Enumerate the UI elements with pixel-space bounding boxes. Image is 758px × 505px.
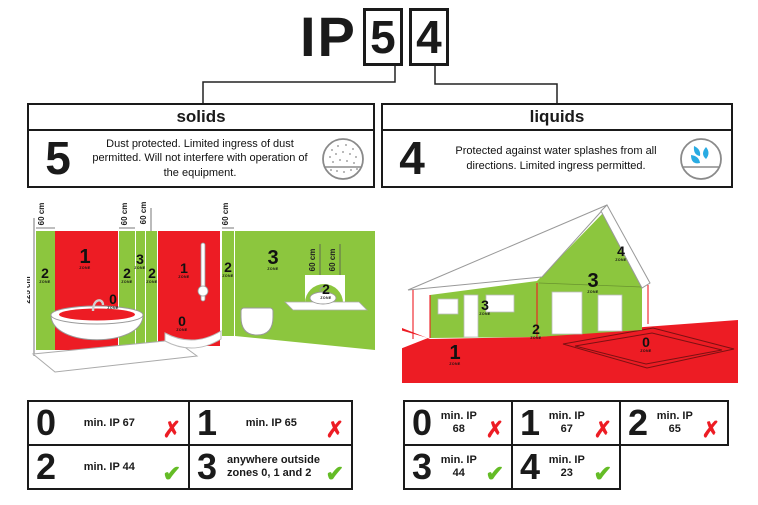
zone-word: ZONE (39, 280, 51, 284)
patio-door (552, 292, 582, 334)
zone-word: ZONE (267, 267, 279, 271)
dist-label-4: 60 cm (221, 203, 230, 226)
zone-word: ZONE (176, 328, 188, 332)
ip-prefix: IP (300, 8, 357, 66)
fail-x-icon: ✗ (326, 419, 344, 441)
dist-label-5: 60 cm (308, 249, 317, 272)
dust-circle-icon (319, 136, 367, 182)
rating-cell: 2 min. IP 65 ✗ (619, 400, 729, 446)
zone-word: ZONE (320, 296, 332, 300)
zone-3-label: 3 (136, 251, 144, 267)
zone-word: ZONE (530, 336, 542, 340)
solids-description: Dust protected. Limited ingress of dust … (81, 137, 319, 180)
zone-number: 4 (520, 445, 540, 489)
pass-check-icon: ✔ (594, 463, 612, 485)
water-splash-icon (677, 136, 725, 182)
min-ip-text: min. IP 67 (56, 417, 163, 430)
liquids-description: Protected against water splashes from al… (435, 144, 677, 173)
zone-word: ZONE (178, 275, 190, 279)
zone-2-label: 2 (532, 321, 540, 337)
zone-word: ZONE (134, 266, 146, 270)
table-row: 2 min. IP 44 ✔ 3 anywhere outside zones … (27, 446, 353, 490)
fail-x-icon: ✗ (594, 419, 612, 441)
fail-x-icon: ✗ (486, 419, 504, 441)
zone-0-label: 0 (109, 291, 117, 307)
table-row: 3 min. IP 44 ✔ 4 min. IP 23 ✔ (403, 446, 729, 490)
zone-3-label: 3 (481, 297, 489, 313)
dist-label-1: 60 cm (37, 203, 46, 226)
rating-cell: 3 min. IP 44 ✔ (403, 444, 513, 490)
solids-digit-box: 5 (363, 8, 403, 66)
rating-cell: 1 min. IP 67 ✗ (511, 400, 621, 446)
liquids-body: 4 Protected against water splashes from … (383, 131, 731, 186)
zone-word: ZONE (146, 280, 158, 284)
min-ip-text: min. IP 65 (648, 410, 702, 435)
front-window-1 (438, 299, 458, 314)
rating-cell: 3 anywhere outside zones 0, 1 and 2 ✔ (188, 444, 353, 490)
zone-word: ZONE (121, 280, 133, 284)
zone-number: 2 (628, 401, 648, 445)
zone-2-label: 2 (322, 281, 330, 297)
min-ip-text: anywhere outside zones 0, 1 and 2 (217, 454, 326, 479)
table-row: 0 min. IP 67 ✗ 1 min. IP 65 ✗ (27, 400, 353, 446)
liquids-rating-digit: 4 (389, 131, 435, 186)
rating-cell: 2 min. IP 44 ✔ (27, 444, 190, 490)
zone-number: 3 (412, 445, 432, 489)
zone-word: ZONE (479, 312, 491, 316)
liquids-header: liquids (383, 105, 731, 131)
title: IP 5 4 (300, 8, 449, 66)
solids-body: 5 Dust protected. Limited ingress of dus… (29, 131, 373, 186)
solids-panel: solids 5 Dust protected. Limited ingress… (27, 103, 375, 188)
zone-number: 2 (36, 445, 56, 489)
toilet (241, 308, 273, 335)
liquids-digit-box: 4 (409, 8, 449, 66)
dist-label-6: 60 cm (328, 249, 337, 272)
zone-word: ZONE (615, 258, 627, 262)
min-ip-text: min. IP 65 (217, 417, 326, 430)
solids-rating-digit: 5 (35, 131, 81, 186)
zone-number: 0 (412, 401, 432, 445)
zone-word: ZONE (640, 349, 652, 353)
min-ip-text: min. IP 44 (56, 461, 163, 474)
liquids-panel: liquids 4 Protected against water splash… (381, 103, 733, 188)
zone-3-label: 3 (587, 270, 598, 292)
rating-cell: 0 min. IP 68 ✗ (403, 400, 513, 446)
zone-2-label: 2 (148, 265, 156, 281)
min-ip-text: min. IP 67 (540, 410, 594, 435)
outdoor-ip-table: 0 min. IP 68 ✗ 1 min. IP 67 ✗ 2 min. IP … (403, 400, 729, 490)
table-row: 0 min. IP 68 ✗ 1 min. IP 67 ✗ 2 min. IP … (403, 400, 729, 446)
zone-number: 3 (197, 445, 217, 489)
ip-rating-infographic: IP 5 4 solids 5 Dust protected. Limited … (0, 0, 758, 505)
zone-1-label: 1 (180, 260, 188, 276)
dist-label-2: 60 cm (120, 203, 129, 226)
zone-word: ZONE (587, 290, 599, 294)
bathroom-zone-diagram: 225 cm 60 cm 60 cm 60 cm 60 cm 60 cm 60 … (27, 198, 375, 390)
zone-2-label: 2 (123, 265, 131, 281)
front-window-2 (486, 295, 514, 312)
min-ip-text: min. IP 23 (540, 454, 594, 479)
front-door (464, 295, 478, 337)
min-ip-text: min. IP 44 (432, 454, 486, 479)
zone-number: 1 (520, 401, 540, 445)
fail-x-icon: ✗ (163, 419, 181, 441)
zone-1-label: 1 (449, 342, 460, 364)
zone-0-label: 0 (178, 313, 186, 329)
house (408, 205, 650, 339)
min-ip-text: min. IP 68 (432, 410, 486, 435)
pass-check-icon: ✔ (486, 463, 504, 485)
dist-label-3: 60 cm (139, 202, 148, 225)
zone-word: ZONE (449, 362, 461, 366)
zone-1-label: 1 (79, 246, 90, 268)
zone-2-label: 2 (224, 259, 232, 275)
rating-cell: 4 min. IP 23 ✔ (511, 444, 621, 490)
shower-knob (198, 286, 208, 296)
pass-check-icon: ✔ (163, 463, 181, 485)
bath-height-label: 225 cm (27, 276, 32, 303)
solids-header: solids (29, 105, 373, 131)
zone-0-label: 0 (642, 334, 650, 350)
zone-word: ZONE (222, 274, 234, 278)
zone-number: 1 (197, 401, 217, 445)
rating-cell: 0 min. IP 67 ✗ (27, 400, 190, 446)
bathroom-ip-table: 0 min. IP 67 ✗ 1 min. IP 65 ✗ 2 min. IP … (27, 400, 353, 490)
rating-cell: 1 min. IP 65 ✗ (188, 400, 353, 446)
zone-4-label: 4 (617, 243, 625, 259)
zone-word: ZONE (79, 266, 91, 270)
zone-3-label: 3 (267, 247, 278, 269)
gable-window (598, 295, 622, 331)
zone-word: ZONE (107, 306, 119, 310)
pass-check-icon: ✔ (326, 463, 344, 485)
house-zone-diagram: 1 ZONE 0 ZONE 2 ZONE 3 ZONE 3 ZONE 4 ZON… (400, 197, 740, 389)
zone-number: 0 (36, 401, 56, 445)
zone-2-label: 2 (41, 265, 49, 281)
fail-x-icon: ✗ (702, 419, 720, 441)
